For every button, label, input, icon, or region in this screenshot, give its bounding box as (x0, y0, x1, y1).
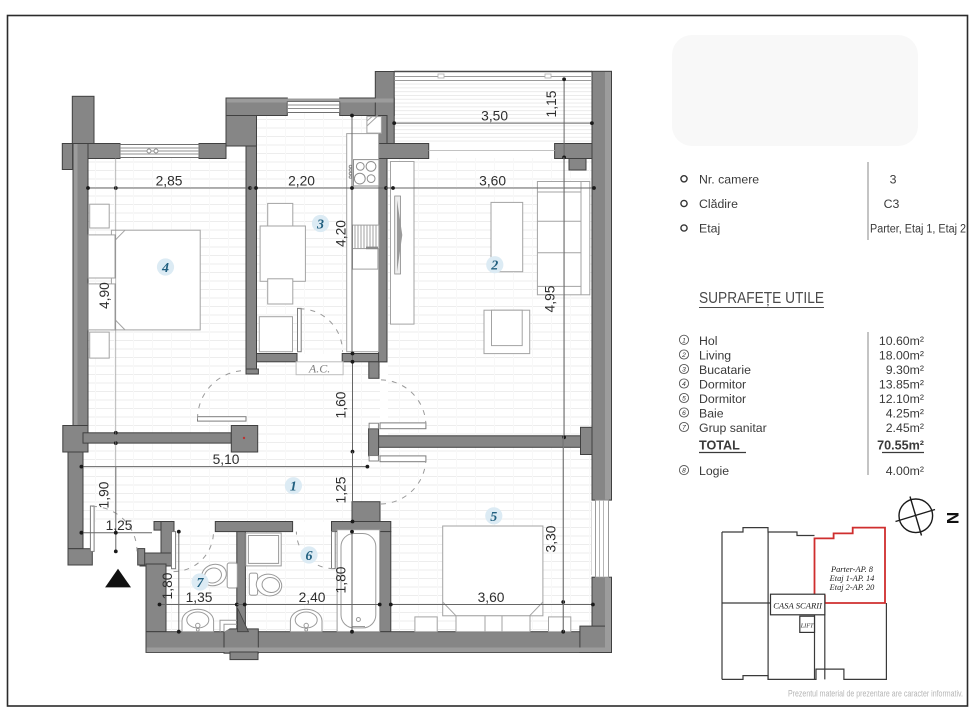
svg-text:9.30m²: 9.30m² (886, 363, 924, 377)
svg-text:4,20: 4,20 (334, 220, 349, 247)
svg-text:3: 3 (682, 367, 686, 374)
svg-text:Etaj 2-AP. 20: Etaj 2-AP. 20 (829, 583, 876, 592)
svg-text:4: 4 (161, 261, 169, 276)
svg-text:1: 1 (290, 480, 297, 495)
svg-text:5: 5 (490, 510, 497, 525)
svg-text:1,15: 1,15 (544, 90, 559, 117)
svg-text:1: 1 (682, 337, 686, 344)
svg-text:Bucatarie: Bucatarie (699, 363, 751, 377)
svg-text:Parter, Etaj 1, Etaj 2: Parter, Etaj 1, Etaj 2 (870, 224, 966, 236)
svg-text:Nr. camere: Nr. camere (699, 172, 759, 186)
svg-text:3,60: 3,60 (479, 174, 506, 189)
svg-text:3,60: 3,60 (478, 590, 505, 605)
svg-text:3: 3 (890, 172, 897, 186)
svg-text:13.85m²: 13.85m² (879, 378, 924, 392)
svg-text:2,40: 2,40 (299, 590, 326, 605)
svg-text:4,90: 4,90 (97, 282, 112, 309)
svg-text:5: 5 (682, 396, 686, 403)
svg-text:10.60m²: 10.60m² (879, 334, 924, 348)
svg-text:CASA SCARII: CASA SCARII (773, 601, 823, 611)
svg-text:2: 2 (681, 352, 686, 359)
svg-text:4.00m²: 4.00m² (886, 464, 924, 478)
svg-text:Etaj 1-AP. 14: Etaj 1-AP. 14 (829, 574, 875, 583)
svg-text:1,90: 1,90 (97, 481, 112, 508)
svg-text:LIFT: LIFT (800, 623, 814, 630)
svg-text:2.45m²: 2.45m² (886, 421, 924, 435)
svg-text:6: 6 (306, 549, 313, 564)
svg-text:SUPRAFEȚE UTILE: SUPRAFEȚE UTILE (699, 290, 824, 307)
svg-text:Hol: Hol (699, 334, 717, 348)
svg-text:4.25m²: 4.25m² (886, 407, 924, 421)
svg-text:3,30: 3,30 (544, 525, 559, 552)
svg-text:TOTAL: TOTAL (699, 439, 740, 453)
svg-text:1,60: 1,60 (334, 391, 349, 418)
svg-text:4,95: 4,95 (543, 285, 558, 312)
svg-text:Living: Living (699, 349, 731, 363)
svg-text:Logie: Logie (699, 464, 729, 478)
svg-text:4: 4 (682, 381, 686, 388)
svg-text:1,35: 1,35 (186, 590, 213, 605)
svg-text:7: 7 (682, 425, 686, 432)
svg-text:N: N (943, 512, 962, 524)
svg-text:5,10: 5,10 (213, 452, 240, 467)
svg-text:Baie: Baie (699, 407, 724, 421)
svg-text:Etaj: Etaj (699, 222, 720, 236)
svg-text:1,80: 1,80 (334, 566, 349, 593)
svg-text:3,50: 3,50 (481, 109, 508, 124)
svg-text:1,25: 1,25 (334, 476, 349, 503)
svg-text:18.00m²: 18.00m² (879, 349, 924, 363)
svg-text:6: 6 (682, 410, 686, 417)
svg-text:A.C.: A.C. (308, 362, 330, 376)
svg-text:1,80: 1,80 (160, 572, 175, 599)
svg-text:Parter-AP. 8: Parter-AP. 8 (830, 565, 874, 574)
svg-text:1,25: 1,25 (106, 518, 133, 533)
svg-text:3: 3 (316, 218, 324, 233)
svg-text:Prezentul material de prezenta: Prezentul material de prezentare are car… (788, 689, 963, 700)
svg-text:Grup sanitar: Grup sanitar (699, 421, 767, 435)
svg-text:C3: C3 (884, 197, 900, 211)
svg-text:Clădire: Clădire (699, 197, 738, 211)
svg-text:Dormitor: Dormitor (699, 378, 746, 392)
svg-text:2,85: 2,85 (156, 174, 183, 189)
svg-text:70.55m²: 70.55m² (877, 439, 924, 453)
svg-text:12.10m²: 12.10m² (879, 392, 924, 406)
svg-text:8: 8 (682, 468, 686, 475)
svg-text:7: 7 (197, 576, 205, 591)
svg-text:Dormitor: Dormitor (699, 392, 746, 406)
svg-text:2,20: 2,20 (288, 174, 315, 189)
svg-text:2: 2 (490, 259, 498, 274)
